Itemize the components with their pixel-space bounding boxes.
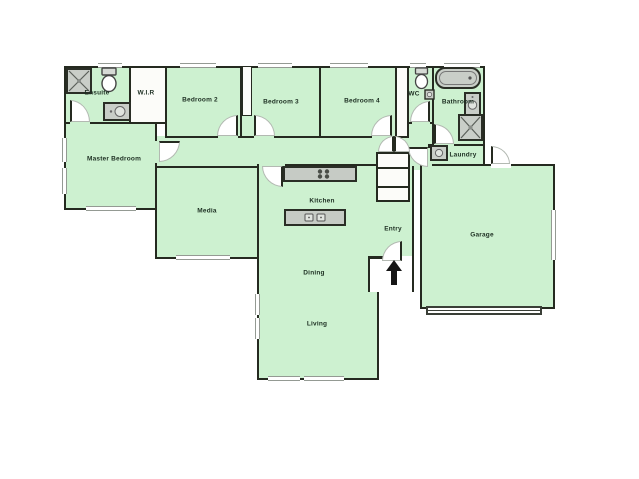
vanity-icon	[103, 102, 131, 121]
room-label-garage: Garage	[470, 232, 494, 239]
window	[304, 376, 344, 381]
washing-machine-icon	[430, 145, 448, 161]
window	[62, 138, 67, 162]
entry-arrow-icon	[386, 260, 402, 285]
room-label-living: Living	[307, 321, 327, 328]
room-label-dining: Dining	[303, 270, 324, 277]
bathtub-icon	[435, 67, 481, 89]
entry-closet-upper	[376, 167, 410, 188]
window	[86, 206, 136, 211]
room-label-wir: W.I.R	[138, 90, 155, 97]
stove-bench-icon	[283, 166, 357, 182]
window	[176, 255, 230, 260]
room-label-entry: Entry	[384, 226, 402, 233]
floor-plan: Ensuite W.I.R Bedroom 2 Bedroom 3 Bedroo…	[0, 0, 639, 479]
room-label-master-bedroom: Master Bedroom	[87, 156, 141, 163]
window	[268, 376, 300, 381]
room-master-bedroom	[64, 122, 157, 210]
window	[62, 168, 67, 194]
room-label-bedroom3: Bedroom 3	[263, 99, 299, 106]
window	[551, 210, 556, 260]
room-label-ensuite: Ensuite	[85, 90, 110, 97]
wardrobe-bedroom3	[242, 66, 252, 116]
wardrobe-bedroom4	[395, 66, 409, 138]
room-label-media: Media	[197, 208, 216, 215]
window	[255, 318, 260, 339]
footer: ARIZTO 6 Joy Place, Rolleston Disclaimer…	[0, 420, 639, 479]
room-label-kitchen: Kitchen	[309, 198, 334, 205]
toilet-icon	[414, 67, 429, 90]
room-label-bedroom2: Bedroom 2	[182, 97, 218, 104]
shower-icon	[458, 114, 483, 141]
room-label-bathroom: Bathroom	[442, 99, 474, 106]
door-arc-garage	[491, 146, 510, 164]
garage-door	[426, 306, 542, 315]
window	[180, 63, 216, 68]
window	[255, 294, 260, 315]
room-label-laundry: Laundry	[449, 152, 476, 159]
room-label-wc: WC	[408, 91, 419, 98]
island-sink-icon	[284, 209, 346, 226]
entry-closet-lower	[376, 186, 410, 202]
sink-icon	[424, 89, 435, 100]
window	[258, 63, 292, 68]
window	[330, 63, 368, 68]
room-label-bedroom4: Bedroom 4	[344, 98, 380, 105]
